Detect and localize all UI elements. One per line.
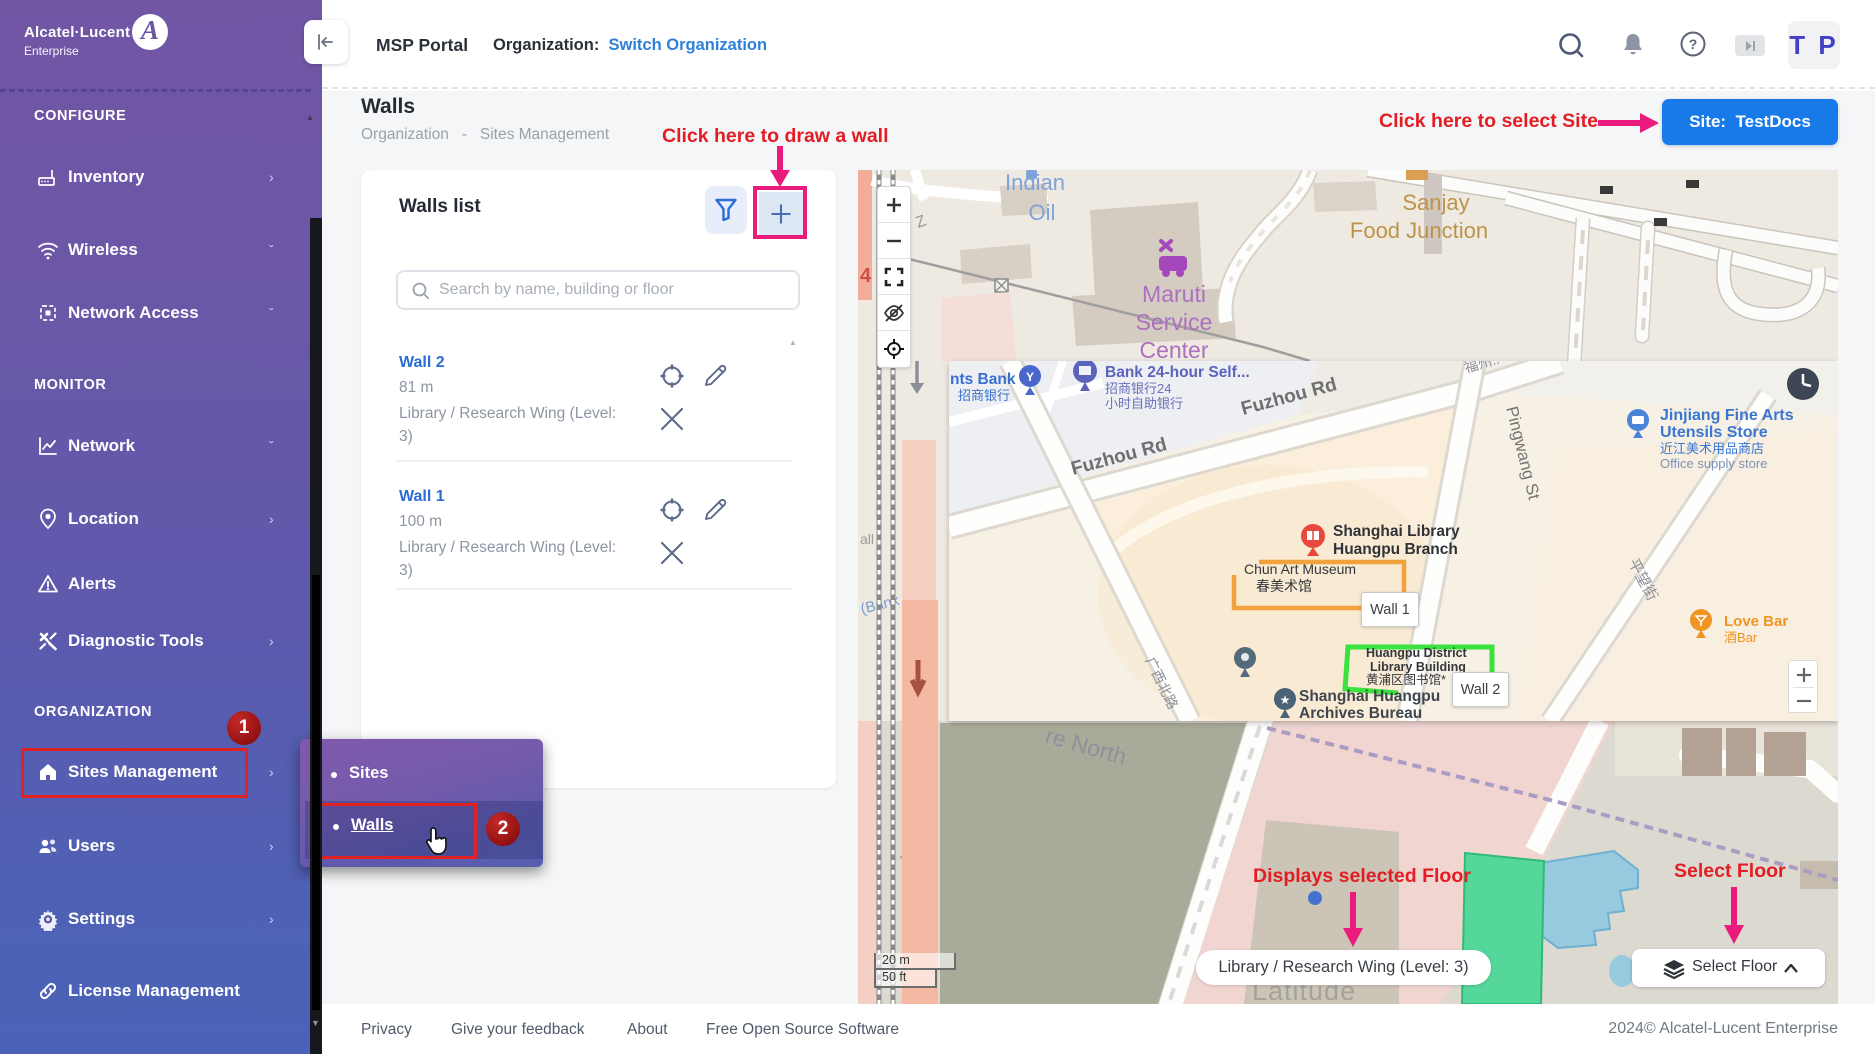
svg-text:4: 4 bbox=[860, 265, 872, 287]
svg-text:招商银行: 招商银行 bbox=[958, 388, 1010, 403]
svg-text:Jinjiang Fine Arts: Jinjiang Fine Arts bbox=[1660, 407, 1794, 424]
svg-text:近江美术用品商店: 近江美术用品商店 bbox=[1660, 441, 1764, 456]
svg-text:Sanjay: Sanjay bbox=[1402, 190, 1469, 215]
svg-text:Huangpu District: Huangpu District bbox=[1366, 646, 1468, 660]
svg-text:Indian: Indian bbox=[1005, 170, 1065, 195]
svg-text:招商银行24: 招商银行24 bbox=[1105, 381, 1171, 396]
svg-text:Shanghai Huangpu: Shanghai Huangpu bbox=[1299, 688, 1440, 705]
svg-text:Love Bar: Love Bar bbox=[1724, 613, 1788, 630]
svg-text:Archives Bureau: Archives Bureau bbox=[1299, 705, 1422, 722]
svg-text:all: all bbox=[860, 531, 874, 547]
svg-text:Shanghai Library: Shanghai Library bbox=[1333, 523, 1460, 540]
svg-text:酒Bar: 酒Bar bbox=[1724, 630, 1758, 645]
svg-text:Center: Center bbox=[1139, 337, 1208, 363]
svg-text:Office supply store: Office supply store bbox=[1660, 456, 1767, 471]
svg-text:Bank 24-hour Self...: Bank 24-hour Self... bbox=[1105, 364, 1250, 381]
svg-text:Oil: Oil bbox=[1029, 200, 1056, 225]
svg-text:?: ? bbox=[1689, 36, 1698, 52]
svg-text:nts Bank: nts Bank bbox=[950, 371, 1016, 388]
svg-text:Food Junction: Food Junction bbox=[1350, 218, 1488, 243]
svg-text:Utensils Store: Utensils Store bbox=[1660, 424, 1768, 441]
svg-text:Library Building: Library Building bbox=[1370, 660, 1466, 674]
svg-text:黄浦区图书馆*: 黄浦区图书馆* bbox=[1366, 672, 1446, 687]
svg-text:Huangpu Branch: Huangpu Branch bbox=[1333, 541, 1458, 558]
svg-text:★: ★ bbox=[1280, 693, 1291, 707]
svg-text:小时自助银行: 小时自助银行 bbox=[1105, 396, 1183, 411]
svg-text:Service: Service bbox=[1136, 309, 1213, 335]
svg-text:春美术馆: 春美术馆 bbox=[1256, 578, 1312, 594]
svg-text:Y: Y bbox=[1026, 370, 1034, 384]
svg-text:Maruti: Maruti bbox=[1142, 281, 1206, 307]
